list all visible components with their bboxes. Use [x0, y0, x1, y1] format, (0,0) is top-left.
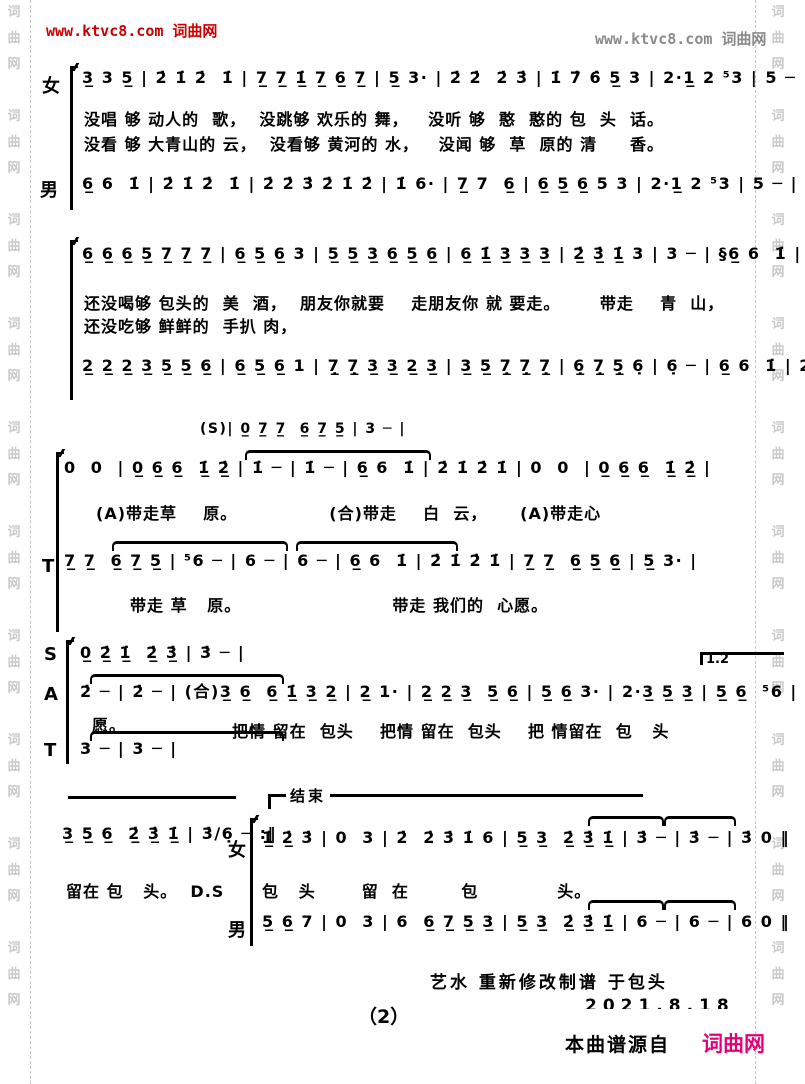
- site-watermark-top-right: www.ktvc8.com 词曲网: [595, 28, 766, 49]
- ending-label: 结束: [286, 785, 330, 806]
- arranger-credit: 艺水 重新修改制谱 于包头: [430, 968, 668, 993]
- voice-label-tenor-2: T: [44, 740, 56, 761]
- system-brace: [66, 640, 74, 764]
- system-brace: [70, 66, 78, 210]
- right-watermark-column: 词 曲 网 词 曲 网 词 曲 网 词 曲 网 词 曲 网 词 曲 网 词 曲 …: [765, 0, 791, 1014]
- tie-line: [112, 541, 288, 551]
- voice-label-tenor: T: [42, 556, 54, 577]
- lyrics-ending: 包 头 留 在 包 头。: [262, 878, 591, 902]
- lyrics-line-2a: 还没喝够 包头的 美 酒， 朋友你就要 走朋友你 就 要走。 带走 青 山，: [84, 290, 724, 314]
- tenor-notes-line-4: 7̲ 7̲ 6̲ 7̲ 5̲ | ⁵6 ─ | 6 ─ | 6 ─ | 6̲ 6…: [64, 553, 698, 569]
- system-brace: [56, 452, 64, 632]
- date-clipped: 2021.8.18: [585, 996, 735, 1009]
- female-notes-ending: 1̲̇ 2̲̇ 3̇ | 0 3 | 2̇ 2̇ 3̇ 1̇ 6 | 5̲ 3̲…: [262, 830, 790, 846]
- alto-notes-line-3: 0 0 | 0̲ 6̲ 6̲ 1̲̇ 2̲̇ | 1̇ ─ | 1̇ ─ | 6…: [64, 460, 711, 476]
- voice-label-male-2: 男: [228, 916, 246, 942]
- alto-notes-line-5: 2̇ ─ | 2̇ ─ | (合)3̲ 6̲ 6̲ 1̲̇ 3̲ 2̲ | 2̲…: [80, 684, 798, 700]
- source-brand: 词曲网: [702, 1028, 765, 1058]
- voice-label-alto: A: [44, 684, 58, 705]
- male-notes-ending: 5̲ 6̲ 7 | 0 3 | 6 6̲ 7̲ 5̲ 3̲ | 5̲ 3̲ 2̲…: [262, 914, 790, 930]
- tie-line: [296, 541, 458, 551]
- lyrics-line-1b: 没看 够 大青山的 云， 没看够 黄河的 水， 没闻 够 草 原的 清 香。: [84, 131, 664, 155]
- system-brace: [250, 818, 258, 946]
- system-brace: [70, 240, 78, 400]
- sheet-music-page: 词 曲 网 词 曲 网 词 曲 网 词 曲 网 词 曲 网 词 曲 网 词 曲 …: [0, 0, 805, 1084]
- lyrics-line-4: 带走 草 原。 带走 我们的 心愿。: [130, 592, 548, 616]
- tie-line: [588, 900, 664, 910]
- male-notes-line-1: 6̲ 6 1̇ | 2̇ 1̇ 2̇ 1̇ | 2̇ 2̇ 3̇ 2̇ 1̇ 2…: [82, 176, 798, 192]
- left-watermark-column: 词 曲 网 词 曲 网 词 曲 网 词 曲 网 词 曲 网 词 曲 网 词 曲 …: [1, 0, 27, 1014]
- upper-notes-line-2: 6̲ 6̲ 6̲ 5̲ 7̲ 7̲ 7̲ | 6̲ 5̲ 6̲ 3 | 5̲ 5…: [82, 246, 805, 262]
- page-number: （2）: [358, 1002, 409, 1029]
- voice-label-female: 女: [42, 72, 60, 98]
- lyrics-line-1a: 没唱 够 动人的 歌， 没跳够 欢乐的 舞， 没听 够 憨 憨的 包 头 话。: [84, 106, 664, 130]
- lyrics-line-2b: 还没吃够 鲜鲜的 手扒 肉，: [84, 313, 297, 337]
- lower-notes-line-2: 2̲ 2̲ 2̲ 3̲ 5̲ 5̲ 6̲ | 6̲ 5̲ 6̲ 1 | 7̣̲ …: [82, 358, 805, 374]
- tenor-notes-line-5: 3 ─ | 3 ─ |: [80, 741, 178, 757]
- soprano-notes-line-5: 0̲ 2̲̇ 1̲̇ 2̲̇ 3̲̇ | 3̇ ─ |: [80, 645, 245, 661]
- coda-overline: [68, 796, 236, 799]
- voice-label-male: 男: [40, 176, 58, 202]
- voice-label-soprano: S: [44, 644, 57, 665]
- voice-label-female-2: 女: [228, 836, 246, 862]
- lyrics-line-5: 把情 留在 包头 把情 留在 包头 把 情留在 包 头: [232, 718, 669, 742]
- coda-lyrics: 留在 包 头。 D.S: [66, 878, 224, 902]
- segno-pickup-line: (S)| 0̲ 7̲ 7̲ 6̲ 7̲ 5̲ | 3 ─ |: [200, 422, 406, 436]
- left-margin-divider: [30, 0, 31, 1084]
- lyrics-line-3: (A)带走草 原。 (合)带走 白 云， (A)带走心: [96, 500, 601, 524]
- tie-line: [588, 816, 664, 826]
- volta-bracket: 1.2: [700, 652, 784, 665]
- source-label: 本曲谱源自: [565, 1030, 670, 1057]
- tie-line: [664, 816, 736, 826]
- tie-line: [664, 900, 736, 910]
- site-watermark-top-left: www.ktvc8.com 词曲网: [46, 20, 217, 41]
- female-notes-line-1: 3̲ 3 5̲ | 2̇ 1̇ 2̇ 1̇ | 7̲ 7̲ 1̲̇ 7̲ 6̲ …: [82, 70, 805, 86]
